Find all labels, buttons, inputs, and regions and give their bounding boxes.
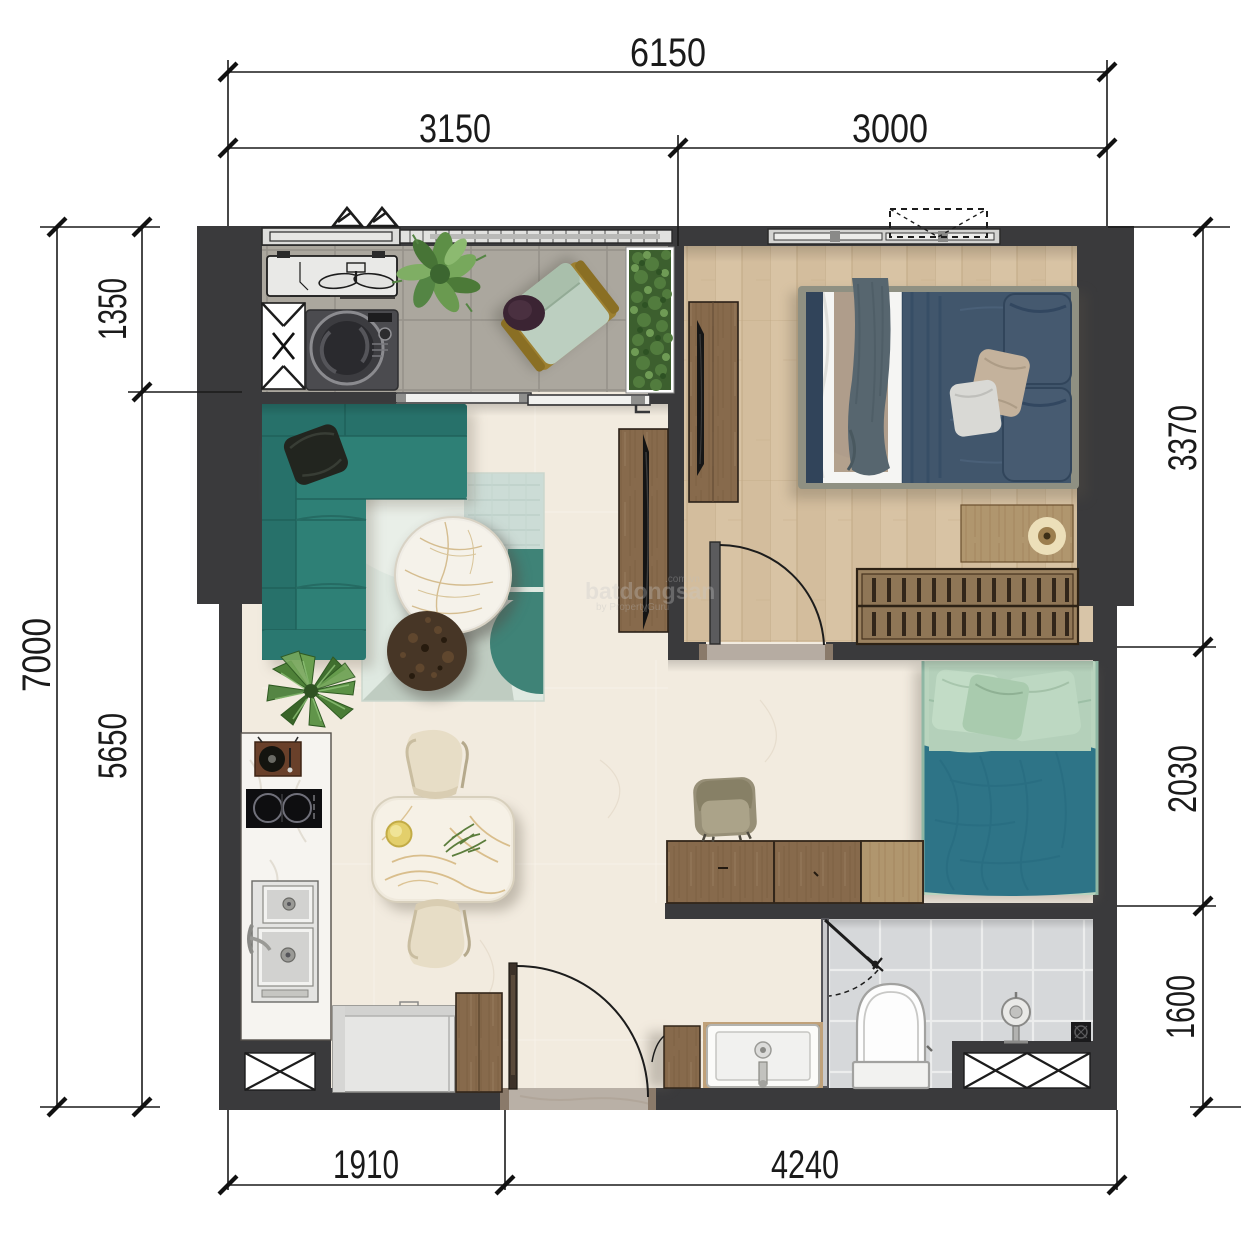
svg-text:3000: 3000 [852,107,928,151]
svg-text:5650: 5650 [91,713,135,779]
svg-text:3150: 3150 [419,107,491,151]
svg-text:batdongsan: batdongsan [585,578,715,604]
svg-text:by PropertyGuru: by PropertyGuru [596,602,669,613]
svg-text:4240: 4240 [771,1143,839,1187]
svg-text:1600: 1600 [1159,975,1203,1039]
svg-text:7000: 7000 [15,618,59,692]
svg-text:3370: 3370 [1161,405,1205,471]
svg-text:1910: 1910 [333,1143,399,1187]
svg-text:2030: 2030 [1161,745,1205,813]
svg-text:1350: 1350 [91,278,135,340]
svg-text:6150: 6150 [630,31,706,75]
